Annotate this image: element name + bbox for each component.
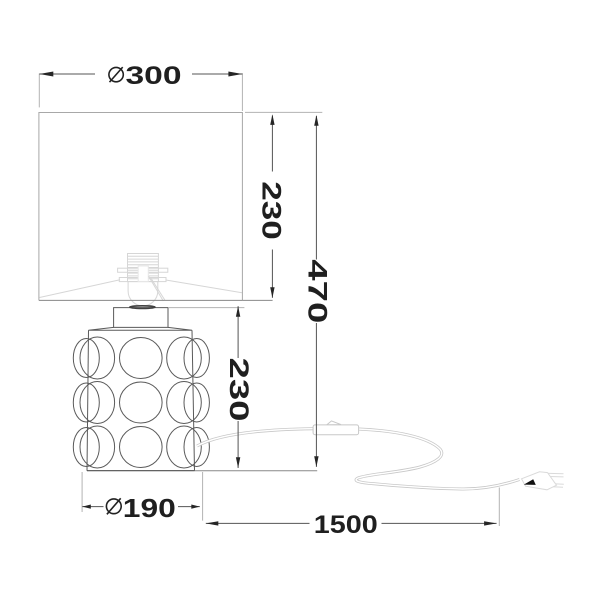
svg-text:190: 190 bbox=[123, 493, 176, 523]
svg-text:230: 230 bbox=[224, 358, 254, 422]
svg-text:1500: 1500 bbox=[314, 511, 378, 539]
svg-text:300: 300 bbox=[126, 62, 182, 90]
svg-text:470: 470 bbox=[302, 259, 332, 323]
svg-text:230: 230 bbox=[256, 181, 286, 240]
